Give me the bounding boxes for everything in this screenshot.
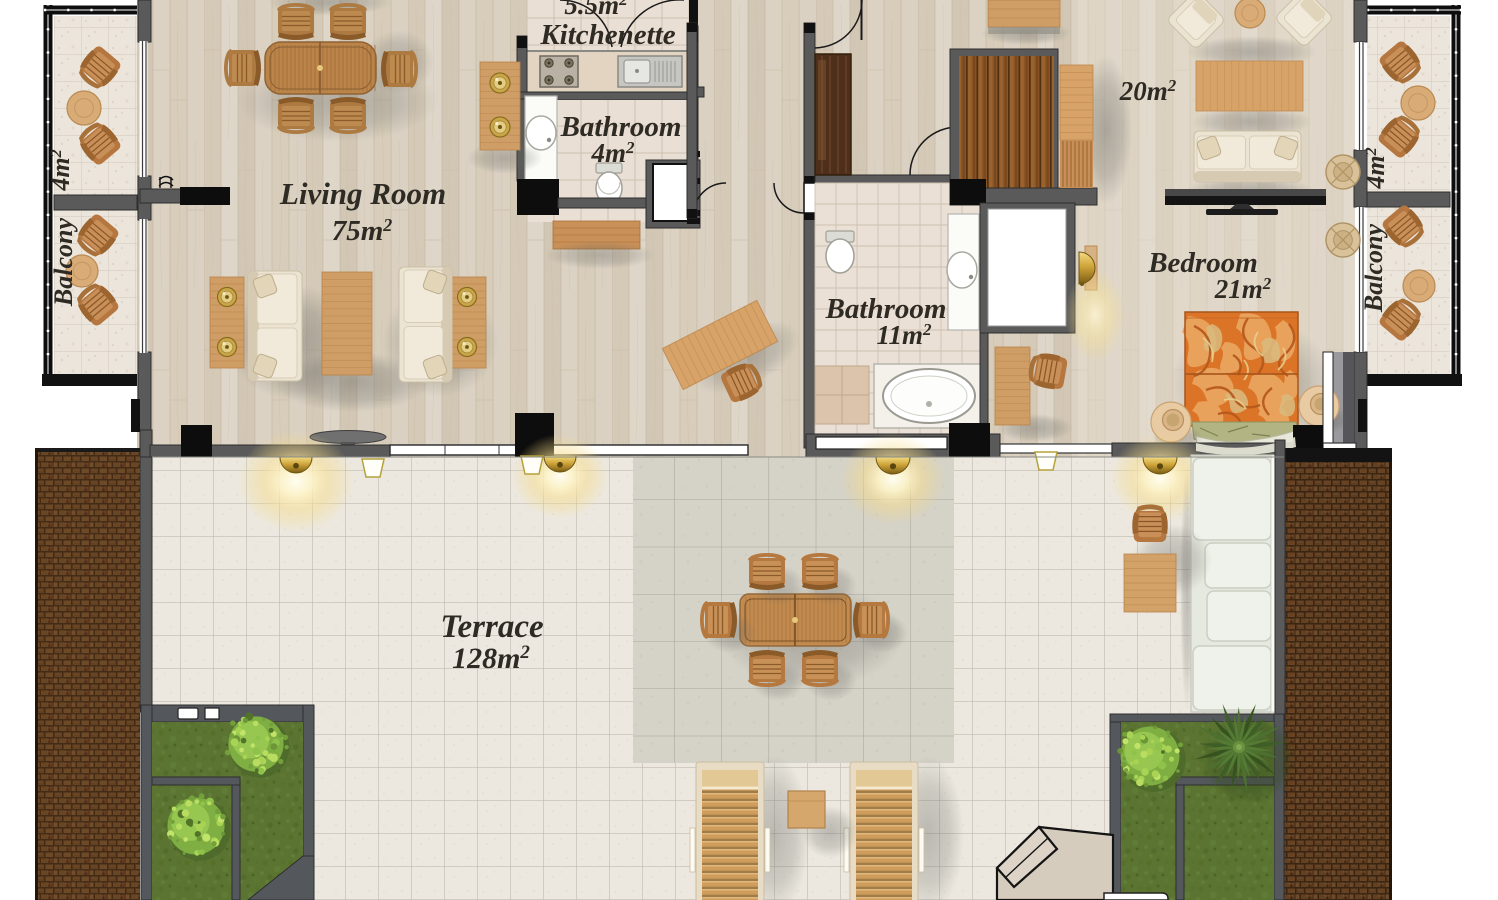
svg-text:Kitchenette: Kitchenette xyxy=(539,19,675,51)
svg-text:Balcony: Balcony xyxy=(49,217,78,307)
svg-text:Living Room: Living Room xyxy=(279,176,446,211)
svg-text:5.5m2: 5.5m2 xyxy=(564,0,628,20)
svg-text:128m2: 128m2 xyxy=(452,642,530,675)
svg-text:75m2: 75m2 xyxy=(332,215,393,247)
svg-text:Terrace: Terrace xyxy=(440,609,543,645)
